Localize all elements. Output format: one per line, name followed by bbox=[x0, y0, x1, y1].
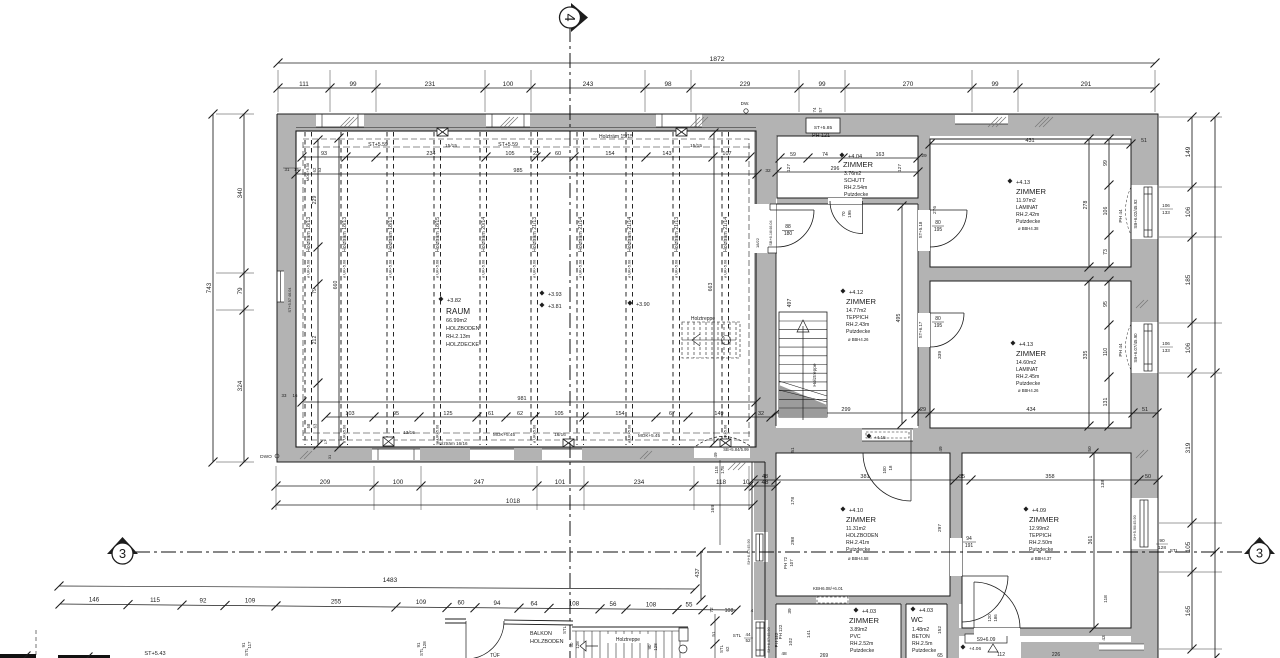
svg-text:Holzträm 18/13: Holzträm 18/13 bbox=[388, 217, 394, 252]
svg-text:660: 660 bbox=[333, 281, 339, 290]
svg-text:231: 231 bbox=[425, 81, 436, 88]
svg-text:95: 95 bbox=[1103, 301, 1109, 307]
svg-text:195: 195 bbox=[934, 323, 943, 329]
svg-text:31: 31 bbox=[327, 454, 332, 459]
svg-text:91: 91 bbox=[241, 642, 246, 647]
svg-text:ST+5.85: ST+5.85 bbox=[814, 125, 833, 131]
svg-text:STL: STL bbox=[1170, 548, 1179, 554]
svg-text:128: 128 bbox=[575, 641, 580, 649]
svg-text:Holzträm 21/14: Holzträm 21/14 bbox=[723, 217, 729, 252]
svg-text:118: 118 bbox=[716, 479, 727, 486]
svg-text:66.99m2: 66.99m2 bbox=[446, 318, 467, 324]
svg-text:DW.: DW. bbox=[741, 101, 750, 106]
svg-text:297: 297 bbox=[937, 524, 943, 532]
svg-text:HOLZDECKE: HOLZDECKE bbox=[446, 342, 479, 348]
svg-text:106: 106 bbox=[1162, 203, 1170, 208]
svg-text:4: 4 bbox=[751, 608, 754, 614]
svg-text:ø BBH4.58: ø BBH4.58 bbox=[848, 556, 869, 561]
svg-text:276: 276 bbox=[932, 206, 938, 214]
svg-text:HOLZBODEN: HOLZBODEN bbox=[846, 533, 879, 539]
svg-text:108: 108 bbox=[725, 608, 734, 614]
svg-text:ø UK+5.68: ø UK+5.68 bbox=[675, 260, 679, 278]
svg-text:109: 109 bbox=[416, 599, 427, 606]
svg-text:49: 49 bbox=[713, 452, 718, 458]
svg-text:103: 103 bbox=[345, 411, 354, 417]
svg-text:ø UK+5.68: ø UK+5.68 bbox=[436, 260, 440, 278]
svg-text:PH 72: PH 72 bbox=[783, 556, 788, 569]
svg-text:11.31m2: 11.31m2 bbox=[846, 526, 866, 532]
svg-text:PH 121: PH 121 bbox=[812, 133, 830, 139]
svg-text:53: 53 bbox=[317, 167, 322, 172]
svg-text:106: 106 bbox=[1185, 206, 1192, 217]
svg-text:1872: 1872 bbox=[709, 56, 724, 63]
svg-text:RH.2.5m: RH.2.5m bbox=[912, 641, 932, 647]
svg-text:180: 180 bbox=[784, 231, 793, 237]
svg-text:110: 110 bbox=[1103, 348, 1109, 356]
svg-text:59: 59 bbox=[790, 152, 796, 158]
svg-text:ø UK+5.68: ø UK+5.68 bbox=[482, 260, 486, 278]
svg-text:299: 299 bbox=[841, 407, 850, 413]
svg-text:+4.03: +4.03 bbox=[919, 608, 933, 614]
svg-text:RH.2.50m: RH.2.50m bbox=[1029, 540, 1052, 546]
svg-text:BETON: BETON bbox=[912, 634, 930, 640]
svg-text:+4.09: +4.09 bbox=[1032, 508, 1046, 514]
svg-text:+4.12: +4.12 bbox=[849, 290, 863, 296]
svg-text:STL: STL bbox=[244, 647, 249, 655]
svg-text:58: 58 bbox=[306, 423, 311, 428]
svg-text:29: 29 bbox=[921, 153, 927, 159]
svg-text:108: 108 bbox=[646, 601, 657, 608]
svg-text:ST+5.57 46.04: ST+5.57 46.04 bbox=[288, 287, 292, 312]
svg-text:SB+6.16/46.04: SB+6.16/46.04 bbox=[769, 220, 773, 245]
svg-text:437: 437 bbox=[695, 568, 701, 577]
svg-text:ø BBH4.38: ø BBH4.38 bbox=[1018, 226, 1039, 231]
svg-text:1483: 1483 bbox=[383, 577, 398, 584]
svg-text:90: 90 bbox=[647, 644, 652, 649]
svg-text:Holzträm 18/13: Holzträm 18/13 bbox=[306, 217, 312, 252]
svg-text:105: 105 bbox=[554, 411, 563, 417]
svg-text:255: 255 bbox=[331, 598, 342, 605]
svg-text:ø UK+5.68: ø UK+5.68 bbox=[307, 260, 311, 278]
svg-text:743: 743 bbox=[206, 282, 213, 293]
svg-text:269: 269 bbox=[820, 653, 829, 658]
svg-text:33: 33 bbox=[282, 393, 287, 398]
svg-text:234: 234 bbox=[634, 479, 645, 486]
svg-text:ø UK+5.68: ø UK+5.68 bbox=[724, 260, 728, 278]
svg-text:191: 191 bbox=[965, 543, 974, 549]
svg-text:+3.81: +3.81 bbox=[548, 304, 562, 310]
svg-text:4: 4 bbox=[561, 13, 577, 21]
svg-text:ZIMMER: ZIMMER bbox=[846, 515, 876, 524]
svg-text:497: 497 bbox=[787, 299, 793, 308]
svg-text:ø UK+5.68: ø UK+5.68 bbox=[343, 260, 347, 278]
svg-text:99: 99 bbox=[349, 81, 357, 88]
svg-text:106: 106 bbox=[1185, 342, 1192, 353]
svg-text:BALKON: BALKON bbox=[530, 631, 552, 637]
svg-text:S9+6.09: S9+6.09 bbox=[977, 637, 996, 643]
svg-text:51: 51 bbox=[1142, 407, 1148, 413]
svg-text:15: 15 bbox=[294, 167, 299, 172]
svg-text:358: 358 bbox=[1045, 474, 1054, 480]
svg-text:94: 94 bbox=[494, 600, 501, 607]
svg-text:LAMINAT: LAMINAT bbox=[1016, 367, 1039, 373]
svg-text:+3.82: +3.82 bbox=[447, 298, 461, 304]
svg-text:226: 226 bbox=[1052, 652, 1061, 658]
svg-text:1018: 1018 bbox=[506, 498, 521, 505]
svg-text:72: 72 bbox=[709, 607, 715, 613]
svg-text:107: 107 bbox=[789, 559, 794, 567]
svg-text:80: 80 bbox=[935, 220, 941, 226]
svg-text:ø UK+5.68: ø UK+5.68 bbox=[389, 260, 393, 278]
svg-text:PH 44: PH 44 bbox=[1118, 209, 1124, 223]
svg-text:131: 131 bbox=[1103, 398, 1109, 407]
svg-text:Putzdecke: Putzdecke bbox=[1016, 219, 1040, 225]
svg-text:319: 319 bbox=[1185, 442, 1192, 453]
svg-text:ø UK+5.68: ø UK+5.68 bbox=[533, 260, 537, 278]
svg-text:Putzdecke: Putzdecke bbox=[846, 329, 870, 335]
svg-text:74: 74 bbox=[812, 107, 817, 112]
svg-text:70: 70 bbox=[841, 211, 846, 217]
svg-text:18/22: 18/22 bbox=[755, 237, 760, 248]
svg-text:MOK+5.58: MOK+5.58 bbox=[306, 163, 310, 181]
svg-text:95: 95 bbox=[393, 411, 399, 417]
svg-text:49: 49 bbox=[938, 446, 944, 452]
svg-text:WC: WC bbox=[911, 615, 923, 624]
svg-text:79: 79 bbox=[312, 288, 318, 294]
svg-text:DWO: DWO bbox=[260, 454, 272, 460]
svg-text:88: 88 bbox=[785, 224, 791, 230]
svg-text:RH.2.45m: RH.2.45m bbox=[1016, 374, 1039, 380]
svg-text:ZIMMER: ZIMMER bbox=[1029, 515, 1059, 524]
svg-text:Holzträm 18/15: Holzträm 18/15 bbox=[435, 217, 441, 252]
svg-text:361: 361 bbox=[1088, 536, 1094, 545]
svg-text:67: 67 bbox=[669, 411, 675, 417]
svg-text:+3.93: +3.93 bbox=[548, 292, 562, 298]
svg-text:52: 52 bbox=[745, 638, 751, 643]
svg-text:LAMINAT: LAMINAT bbox=[1016, 205, 1039, 211]
svg-text:11.97m2: 11.97m2 bbox=[1016, 198, 1036, 204]
svg-text:663: 663 bbox=[708, 283, 714, 292]
svg-text:14.60m2: 14.60m2 bbox=[1016, 360, 1036, 366]
svg-text:106: 106 bbox=[1162, 341, 1170, 346]
svg-text:111: 111 bbox=[299, 81, 309, 88]
svg-text:32: 32 bbox=[758, 411, 764, 417]
svg-text:128: 128 bbox=[653, 643, 658, 651]
svg-text:178: 178 bbox=[790, 497, 796, 505]
svg-text:335: 335 bbox=[1083, 351, 1089, 360]
svg-text:STL: STL bbox=[719, 644, 724, 653]
svg-text:51: 51 bbox=[1141, 138, 1147, 144]
svg-text:152: 152 bbox=[937, 626, 943, 634]
svg-text:+4.13: +4.13 bbox=[1016, 180, 1030, 186]
svg-text:44: 44 bbox=[745, 632, 751, 637]
svg-text:163: 163 bbox=[876, 152, 885, 158]
svg-text:ø BBH4.37: ø BBH4.37 bbox=[1031, 556, 1052, 561]
svg-text:ZIMMER: ZIMMER bbox=[1016, 187, 1046, 196]
svg-text:SH+6.07/45.90: SH+6.07/45.90 bbox=[767, 627, 771, 652]
svg-text:39: 39 bbox=[787, 608, 793, 614]
svg-text:TEPPICH: TEPPICH bbox=[1029, 533, 1052, 539]
svg-text:99: 99 bbox=[818, 81, 826, 88]
svg-text:32: 32 bbox=[765, 168, 771, 174]
svg-text:Holzträm 21/14: Holzträm 21/14 bbox=[578, 217, 584, 252]
svg-text:ST+5.43: ST+5.43 bbox=[144, 651, 165, 657]
svg-text:ZIMMER: ZIMMER bbox=[843, 160, 873, 169]
svg-text:63: 63 bbox=[313, 423, 318, 428]
svg-text:61: 61 bbox=[488, 411, 494, 417]
svg-text:RH.2.52m: RH.2.52m bbox=[850, 641, 873, 647]
svg-text:296: 296 bbox=[831, 166, 840, 172]
svg-text:165: 165 bbox=[1185, 605, 1192, 616]
svg-text:RH.2.41m: RH.2.41m bbox=[846, 540, 869, 546]
svg-text:62: 62 bbox=[517, 411, 523, 417]
svg-text:+4.10: +4.10 bbox=[849, 508, 863, 514]
svg-text:195: 195 bbox=[934, 227, 943, 233]
svg-text:+4.13: +4.13 bbox=[1019, 342, 1033, 348]
svg-text:ø UK+5.68: ø UK+5.68 bbox=[579, 260, 583, 278]
svg-text:17: 17 bbox=[323, 439, 328, 444]
svg-text:981: 981 bbox=[517, 396, 526, 402]
svg-text:209: 209 bbox=[320, 479, 331, 486]
svg-text:340: 340 bbox=[237, 187, 244, 198]
svg-text:234: 234 bbox=[426, 151, 435, 157]
svg-text:PH 44: PH 44 bbox=[1118, 343, 1124, 357]
svg-text:169: 169 bbox=[710, 505, 716, 513]
svg-text:Holztreppe: Holztreppe bbox=[812, 363, 818, 387]
svg-text:16: 16 bbox=[293, 393, 298, 398]
svg-text:62: 62 bbox=[725, 646, 730, 651]
svg-text:14.77m2: 14.77m2 bbox=[846, 308, 866, 314]
svg-text:65: 65 bbox=[937, 653, 943, 658]
svg-text:73: 73 bbox=[1103, 249, 1109, 255]
svg-text:Holzträm 18/13: Holzträm 18/13 bbox=[342, 217, 348, 252]
svg-text:ø UK+5.68: ø UK+5.68 bbox=[628, 260, 632, 278]
svg-text:431: 431 bbox=[1025, 138, 1034, 144]
svg-text:247: 247 bbox=[474, 479, 485, 486]
svg-text:MOK+5.45: MOK+5.45 bbox=[493, 432, 516, 437]
svg-text:91: 91 bbox=[416, 642, 421, 647]
svg-text:133: 133 bbox=[1162, 348, 1170, 353]
svg-text:79: 79 bbox=[237, 287, 244, 295]
svg-text:127: 127 bbox=[786, 164, 792, 172]
svg-text:3: 3 bbox=[119, 546, 126, 561]
svg-text:339: 339 bbox=[937, 351, 943, 359]
svg-text:57: 57 bbox=[818, 107, 823, 112]
svg-text:+4.03: +4.03 bbox=[862, 609, 876, 615]
svg-text:100: 100 bbox=[503, 81, 514, 88]
svg-text:324: 324 bbox=[237, 380, 244, 391]
svg-text:141: 141 bbox=[806, 630, 812, 638]
svg-text:149: 149 bbox=[1185, 146, 1192, 157]
svg-text:KBH6.08/+6.01: KBH6.08/+6.01 bbox=[813, 586, 843, 591]
svg-text:128: 128 bbox=[1158, 545, 1166, 551]
svg-text:381: 381 bbox=[860, 474, 869, 480]
svg-text:SB+5.84/5.99: SB+5.84/5.99 bbox=[723, 447, 749, 452]
svg-text:RH.2.43m: RH.2.43m bbox=[846, 322, 869, 328]
svg-text:Holztreppe: Holztreppe bbox=[616, 637, 640, 643]
svg-text:118: 118 bbox=[1103, 595, 1109, 603]
svg-text:434: 434 bbox=[1026, 407, 1035, 413]
svg-text:195: 195 bbox=[847, 210, 852, 218]
svg-text:Putzdecke: Putzdecke bbox=[844, 192, 868, 198]
svg-text:112: 112 bbox=[997, 652, 1005, 658]
svg-text:229: 229 bbox=[312, 196, 318, 205]
svg-text:229: 229 bbox=[740, 81, 751, 88]
svg-text:146: 146 bbox=[89, 596, 100, 603]
svg-text:RH.2.13m: RH.2.13m bbox=[446, 334, 471, 340]
svg-text:RH.2.54m: RH.2.54m bbox=[844, 185, 867, 191]
svg-text:51: 51 bbox=[711, 631, 716, 637]
svg-text:298: 298 bbox=[790, 537, 796, 545]
svg-text:STL: STL bbox=[733, 633, 742, 638]
svg-text:1.48m2: 1.48m2 bbox=[912, 627, 929, 633]
svg-text:Putzdecke: Putzdecke bbox=[850, 648, 874, 654]
svg-text:RAUM: RAUM bbox=[446, 307, 470, 316]
svg-text:Holzträm 20/14: Holzträm 20/14 bbox=[481, 217, 487, 252]
svg-text:105: 105 bbox=[1185, 541, 1192, 552]
svg-text:185: 185 bbox=[1185, 274, 1192, 285]
svg-text:105: 105 bbox=[505, 151, 514, 157]
svg-text:TEPPICH: TEPPICH bbox=[846, 315, 869, 321]
svg-text:STL: STL bbox=[562, 625, 567, 634]
svg-text:Holzträm 15/15: Holzträm 15/15 bbox=[599, 134, 633, 140]
svg-text:Holzträm 21/13: Holzträm 21/13 bbox=[674, 217, 680, 252]
svg-text:13/16: 13/16 bbox=[403, 430, 415, 435]
svg-text:98: 98 bbox=[664, 81, 672, 88]
svg-text:74: 74 bbox=[822, 152, 828, 158]
svg-text:128: 128 bbox=[422, 641, 427, 649]
svg-text:270: 270 bbox=[903, 81, 914, 88]
svg-text:291: 291 bbox=[1081, 81, 1092, 88]
svg-text:MOK+5.45: MOK+5.45 bbox=[638, 433, 661, 438]
svg-text:+3.90: +3.90 bbox=[636, 302, 650, 308]
svg-text:101: 101 bbox=[555, 479, 566, 486]
svg-text:118: 118 bbox=[714, 466, 719, 474]
svg-text:SH+5.90/45.90: SH+5.90/45.90 bbox=[1133, 515, 1137, 540]
svg-text:90: 90 bbox=[1159, 538, 1165, 544]
svg-text:31: 31 bbox=[285, 167, 290, 172]
svg-text:186: 186 bbox=[993, 614, 998, 622]
svg-text:115: 115 bbox=[150, 597, 160, 604]
svg-text:ø BBH4.26: ø BBH4.26 bbox=[1018, 388, 1039, 393]
svg-text:PVC: PVC bbox=[850, 634, 861, 640]
svg-text:ST+6.17: ST+6.17 bbox=[918, 321, 923, 338]
svg-text:125: 125 bbox=[443, 411, 452, 417]
svg-text:ST+5.59: ST+5.59 bbox=[368, 142, 388, 148]
svg-text:15/15: 15/15 bbox=[690, 143, 702, 149]
svg-text:SB+6.07/45.90: SB+6.07/45.90 bbox=[1133, 333, 1138, 363]
svg-text:100: 100 bbox=[393, 479, 404, 486]
svg-text:109: 109 bbox=[245, 598, 256, 605]
svg-text:99: 99 bbox=[991, 81, 999, 88]
svg-text:149: 149 bbox=[714, 411, 723, 417]
svg-text:ST+5.18: ST+5.18 bbox=[918, 221, 923, 238]
svg-text:50: 50 bbox=[1145, 474, 1151, 480]
svg-text:12.99m2: 12.99m2 bbox=[1029, 526, 1049, 532]
svg-text:Holzträm 21/14: Holzträm 21/14 bbox=[627, 217, 633, 252]
svg-text:99: 99 bbox=[1103, 160, 1109, 166]
svg-text:92: 92 bbox=[200, 597, 207, 604]
svg-text:SCHUTT: SCHUTT bbox=[844, 178, 866, 184]
svg-text:RH.2.42m: RH.2.42m bbox=[1016, 212, 1039, 218]
svg-text:64: 64 bbox=[531, 600, 538, 607]
svg-text:133: 133 bbox=[1162, 210, 1170, 215]
svg-text:127: 127 bbox=[897, 164, 903, 172]
svg-text:Holzträm 16/16: Holzträm 16/16 bbox=[436, 441, 468, 446]
svg-text:48: 48 bbox=[781, 651, 787, 657]
svg-text:243: 243 bbox=[583, 81, 594, 88]
svg-text:495: 495 bbox=[896, 314, 902, 323]
svg-text:15/15: 15/15 bbox=[445, 143, 457, 149]
svg-text:51: 51 bbox=[790, 447, 796, 453]
svg-text:HOLZBODEN: HOLZBODEN bbox=[446, 326, 480, 332]
svg-text:93: 93 bbox=[321, 151, 327, 157]
svg-text:ZIMMER: ZIMMER bbox=[846, 297, 876, 306]
svg-text:48: 48 bbox=[761, 479, 769, 486]
svg-text:29: 29 bbox=[920, 407, 926, 413]
svg-text:ø UK+5.68: ø UK+5.68 bbox=[533, 425, 537, 443]
svg-text:55: 55 bbox=[686, 602, 693, 609]
svg-text:80: 80 bbox=[935, 316, 941, 322]
svg-text:178: 178 bbox=[720, 466, 725, 474]
svg-text:43: 43 bbox=[1101, 635, 1107, 641]
svg-text:+4.15: +4.15 bbox=[874, 435, 886, 440]
svg-text:Holztreppe: Holztreppe bbox=[691, 316, 715, 322]
svg-text:35: 35 bbox=[959, 474, 965, 480]
svg-text:60: 60 bbox=[555, 151, 561, 157]
svg-text:STL: STL bbox=[419, 647, 424, 655]
svg-text:60: 60 bbox=[458, 600, 465, 607]
svg-text:ø BBH4.26: ø BBH4.26 bbox=[848, 337, 869, 342]
svg-text:3.89m2: 3.89m2 bbox=[850, 627, 867, 633]
svg-text:212: 212 bbox=[312, 336, 318, 345]
svg-text:100: 100 bbox=[882, 466, 887, 474]
svg-text:23: 23 bbox=[533, 151, 539, 157]
svg-text:Putzdecke: Putzdecke bbox=[1016, 381, 1040, 387]
svg-text:278: 278 bbox=[1083, 201, 1089, 210]
svg-text:154: 154 bbox=[605, 151, 614, 157]
svg-text:107: 107 bbox=[722, 151, 731, 157]
svg-text:154: 154 bbox=[615, 411, 624, 417]
svg-text:985: 985 bbox=[513, 168, 522, 174]
svg-text:16/16: 16/16 bbox=[554, 432, 566, 437]
svg-text:HOLZBODEN: HOLZBODEN bbox=[530, 639, 564, 645]
svg-text:Holzträm 21/13: Holzträm 21/13 bbox=[532, 217, 538, 252]
svg-text:117: 117 bbox=[247, 641, 252, 649]
svg-text:120: 120 bbox=[987, 614, 992, 622]
svg-text:+4.06: +4.06 bbox=[969, 646, 981, 652]
svg-text:PH 122: PH 122 bbox=[774, 632, 779, 647]
svg-text:106: 106 bbox=[1103, 207, 1109, 216]
svg-text:56: 56 bbox=[610, 601, 617, 608]
svg-text:143: 143 bbox=[662, 151, 671, 157]
svg-text:94: 94 bbox=[966, 536, 972, 542]
svg-text:TÜF: TÜF bbox=[490, 652, 500, 658]
svg-text:18: 18 bbox=[888, 465, 893, 470]
svg-text:ZIMMER: ZIMMER bbox=[849, 616, 879, 625]
svg-text:SB+6.02/45.92: SB+6.02/45.92 bbox=[1133, 199, 1138, 229]
svg-text:50: 50 bbox=[1087, 446, 1093, 452]
svg-text:102: 102 bbox=[788, 638, 794, 646]
svg-text:3: 3 bbox=[1256, 546, 1263, 561]
svg-text:Putzdecke: Putzdecke bbox=[912, 648, 936, 654]
svg-text:ST+5.59: ST+5.59 bbox=[498, 142, 518, 148]
svg-text:138: 138 bbox=[1100, 480, 1106, 488]
svg-text:ZIMMER: ZIMMER bbox=[1016, 349, 1046, 358]
